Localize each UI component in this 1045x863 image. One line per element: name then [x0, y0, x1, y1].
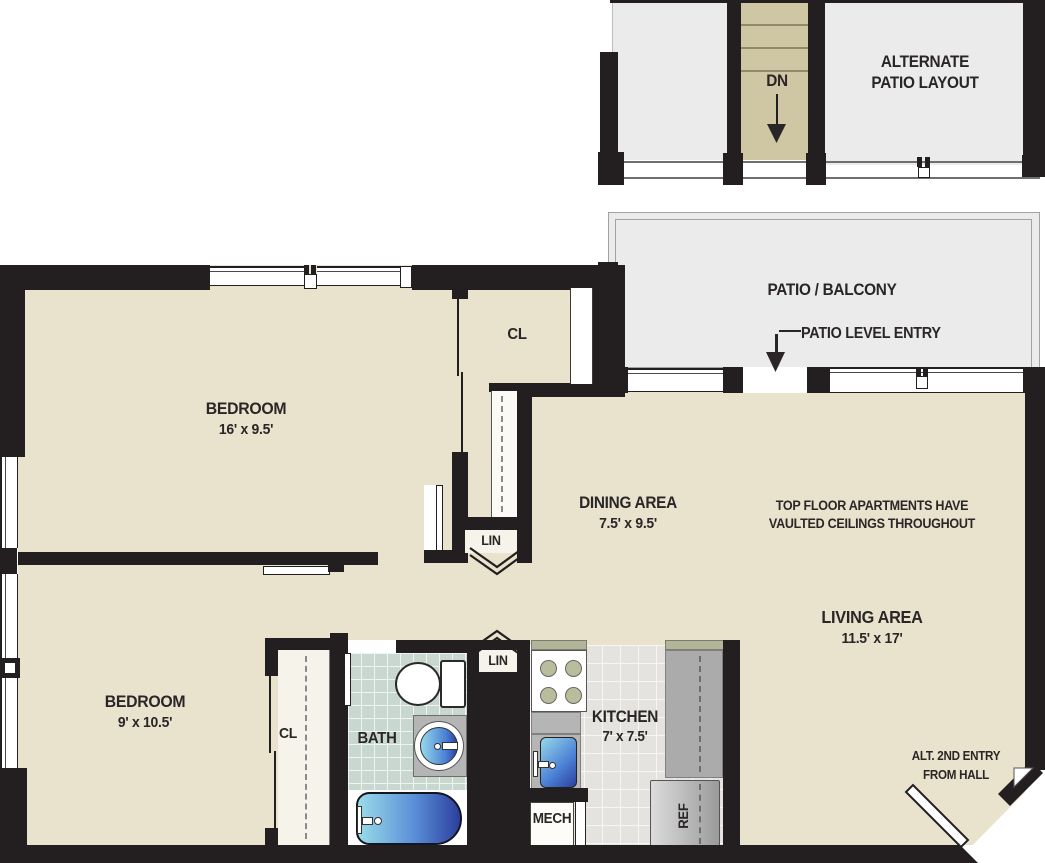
closet2-label: CL: [268, 724, 309, 744]
linen1-label: LIN: [467, 532, 515, 550]
bedroom1-top-wall: [0, 265, 210, 290]
hall-door-leaf: [436, 485, 443, 551]
stair-tread: [741, 24, 808, 26]
kitchen-counter-back-right: [665, 640, 725, 650]
right-wall: [1025, 380, 1045, 770]
window-mullion-mark: [311, 265, 316, 274]
bath-kitchen-closet-block: [467, 640, 530, 863]
kitchen-mech-wall: [530, 788, 588, 802]
pantry-closet: [491, 391, 517, 517]
bottom-wall: [18, 845, 955, 863]
alternate-patio-line2: PATIO LAYOUT: [832, 73, 1018, 94]
bedroom1-name: BEDROOM: [172, 398, 321, 420]
railing-post: [723, 153, 743, 185]
stair-down-arrow-shaft: [776, 94, 778, 124]
ref-label: REF: [674, 797, 692, 834]
closet1-label: CL: [497, 325, 538, 346]
closet1-slider-panel: [461, 372, 463, 453]
vanity-faucet: [442, 742, 458, 750]
bath-door-leaf: [344, 653, 351, 706]
alt-entry-label: ALT. 2ND ENTRY FROM HALL: [882, 747, 1031, 786]
stair-left-wall: [727, 0, 741, 162]
vaulted-note-line1: TOP FLOOR APARTMENTS HAVE: [765, 497, 979, 515]
dining-name: DINING AREA: [544, 493, 711, 514]
tub-faucet-spout: [362, 817, 373, 825]
left-wall-upper: [0, 265, 25, 457]
bath-door-opening: [348, 640, 396, 653]
bedroom2-left-window: [0, 678, 18, 768]
toilet-bowl: [395, 662, 441, 706]
patio-entry-door-strip: [570, 288, 593, 384]
closet1-slider-panel: [457, 298, 459, 376]
living-label: LIVING AREA 11.5' x 17': [798, 606, 947, 648]
kitchen-name: KITCHEN: [551, 707, 700, 728]
pantry-dash-line: [501, 396, 503, 512]
closet2-stub-top: [265, 638, 278, 676]
railing-post: [806, 153, 826, 185]
railing-gate-mark: [925, 157, 930, 167]
kitchen-faucet-spout: [538, 761, 549, 768]
window-mullion-mark: [916, 367, 921, 376]
vaulted-note-line2: VAULTED CEILINGS THROUGHOUT: [765, 515, 979, 533]
living-top-post: [807, 367, 830, 393]
left-wall-post: [0, 548, 17, 574]
railing-line: [618, 161, 1040, 163]
dining-dims: 7.5' x 9.5': [544, 514, 711, 534]
alt-entry-line2: FROM HALL: [882, 766, 1031, 785]
living-top-post: [723, 367, 743, 393]
alternate-patio-line1: ALTERNATE: [832, 52, 1018, 73]
mech-door: [575, 802, 586, 848]
kitchen-counter-back-left: [531, 640, 587, 650]
stove-burner: [540, 660, 557, 677]
stove-burner: [565, 687, 582, 704]
kitchen-dims: 7' x 7.5': [551, 728, 700, 747]
window-end-cap: [400, 266, 412, 288]
railing-gate-mark: [917, 157, 922, 167]
mech-label: MECH: [530, 810, 575, 829]
window-mullion: [916, 376, 928, 389]
door-hinge-stub: [328, 560, 344, 572]
linen1-right-wall: [517, 383, 532, 563]
kitchen-label: KITCHEN 7' x 7.5': [551, 707, 700, 747]
left-window-mullion-box: [4, 662, 16, 674]
linen2-label: LIN: [480, 652, 515, 670]
kitchen-right-wall: [723, 640, 740, 863]
window-mullion-mark: [923, 367, 928, 376]
alternate-patio-label: ALTERNATE PATIO LAYOUT: [832, 52, 1018, 95]
railing-post: [1022, 155, 1045, 177]
patio-entry-opening: [743, 367, 807, 393]
stair-dn-label: DN: [754, 71, 801, 92]
patio-balcony-label: PATIO / BALCONY: [739, 280, 925, 301]
railing-gate: [918, 167, 930, 178]
patio-level-entry-label: PATIO LEVEL ENTRY: [801, 324, 959, 344]
railing-line: [618, 177, 1040, 179]
bedroom2-left-window: [0, 574, 18, 660]
linen1-top-wall: [452, 517, 532, 530]
closet2-stub-bottom: [265, 828, 278, 845]
bedroom1-window: [210, 266, 304, 286]
toilet-tank: [440, 660, 466, 708]
stove-burner: [540, 687, 557, 704]
ref-dash-line: [699, 784, 701, 844]
dining-label: DINING AREA 7.5' x 9.5': [544, 493, 711, 534]
closet1-door-stub: [452, 283, 468, 299]
bedroom1-label: BEDROOM 16' x 9.5': [172, 398, 321, 440]
floor-plan: DN ALTERNATE PATIO LAYOUT PATIO / BALCON…: [0, 0, 1045, 863]
bedroom2-dims: 9' x 10.5': [71, 713, 220, 733]
kitchen-faucet-knob: [549, 762, 556, 769]
bedroom1-window: [317, 266, 400, 286]
railing-post: [598, 152, 624, 185]
bedroom2-door-leaf: [263, 566, 330, 575]
stair-landing-area: [612, 3, 728, 160]
bath-label: BATH: [355, 729, 400, 750]
stove-burner: [565, 660, 582, 677]
vaulted-ceiling-note: TOP FLOOR APARTMENTS HAVE VAULTED CEILIN…: [765, 497, 979, 532]
stair-tread: [741, 47, 808, 49]
living-patio-window: [628, 368, 723, 392]
bedroom1-dims: 16' x 9.5': [172, 420, 321, 440]
closet2-interior: [278, 650, 330, 845]
bedroom2-label: BEDROOM 9' x 10.5': [71, 691, 220, 733]
stove: [531, 650, 587, 712]
upper-right-wall: [1023, 0, 1045, 166]
closet2-slider-panel: [274, 751, 276, 831]
alt-entry-line1: ALT. 2ND ENTRY: [882, 747, 1031, 766]
bath-top-wall: [396, 640, 467, 653]
closet2-dash-line: [305, 656, 307, 839]
bedroom1-left-window: [0, 457, 18, 548]
entry-top-wall: [412, 265, 593, 290]
entry-leader-line: [779, 330, 801, 332]
window-mullion: [304, 274, 317, 289]
bedrooms-divider-wall: [18, 552, 378, 565]
bedroom2-name: BEDROOM: [71, 691, 220, 713]
living-dims: 11.5' x 17': [798, 629, 947, 649]
entry-arrow-shaft: [775, 334, 778, 352]
tub-faucet-knob: [374, 817, 382, 825]
entry-side-wall: [424, 550, 465, 563]
living-top-post: [598, 367, 628, 393]
vanity-faucet-knob: [434, 743, 441, 750]
living-name: LIVING AREA: [798, 606, 947, 629]
window-mullion-mark: [304, 265, 309, 274]
